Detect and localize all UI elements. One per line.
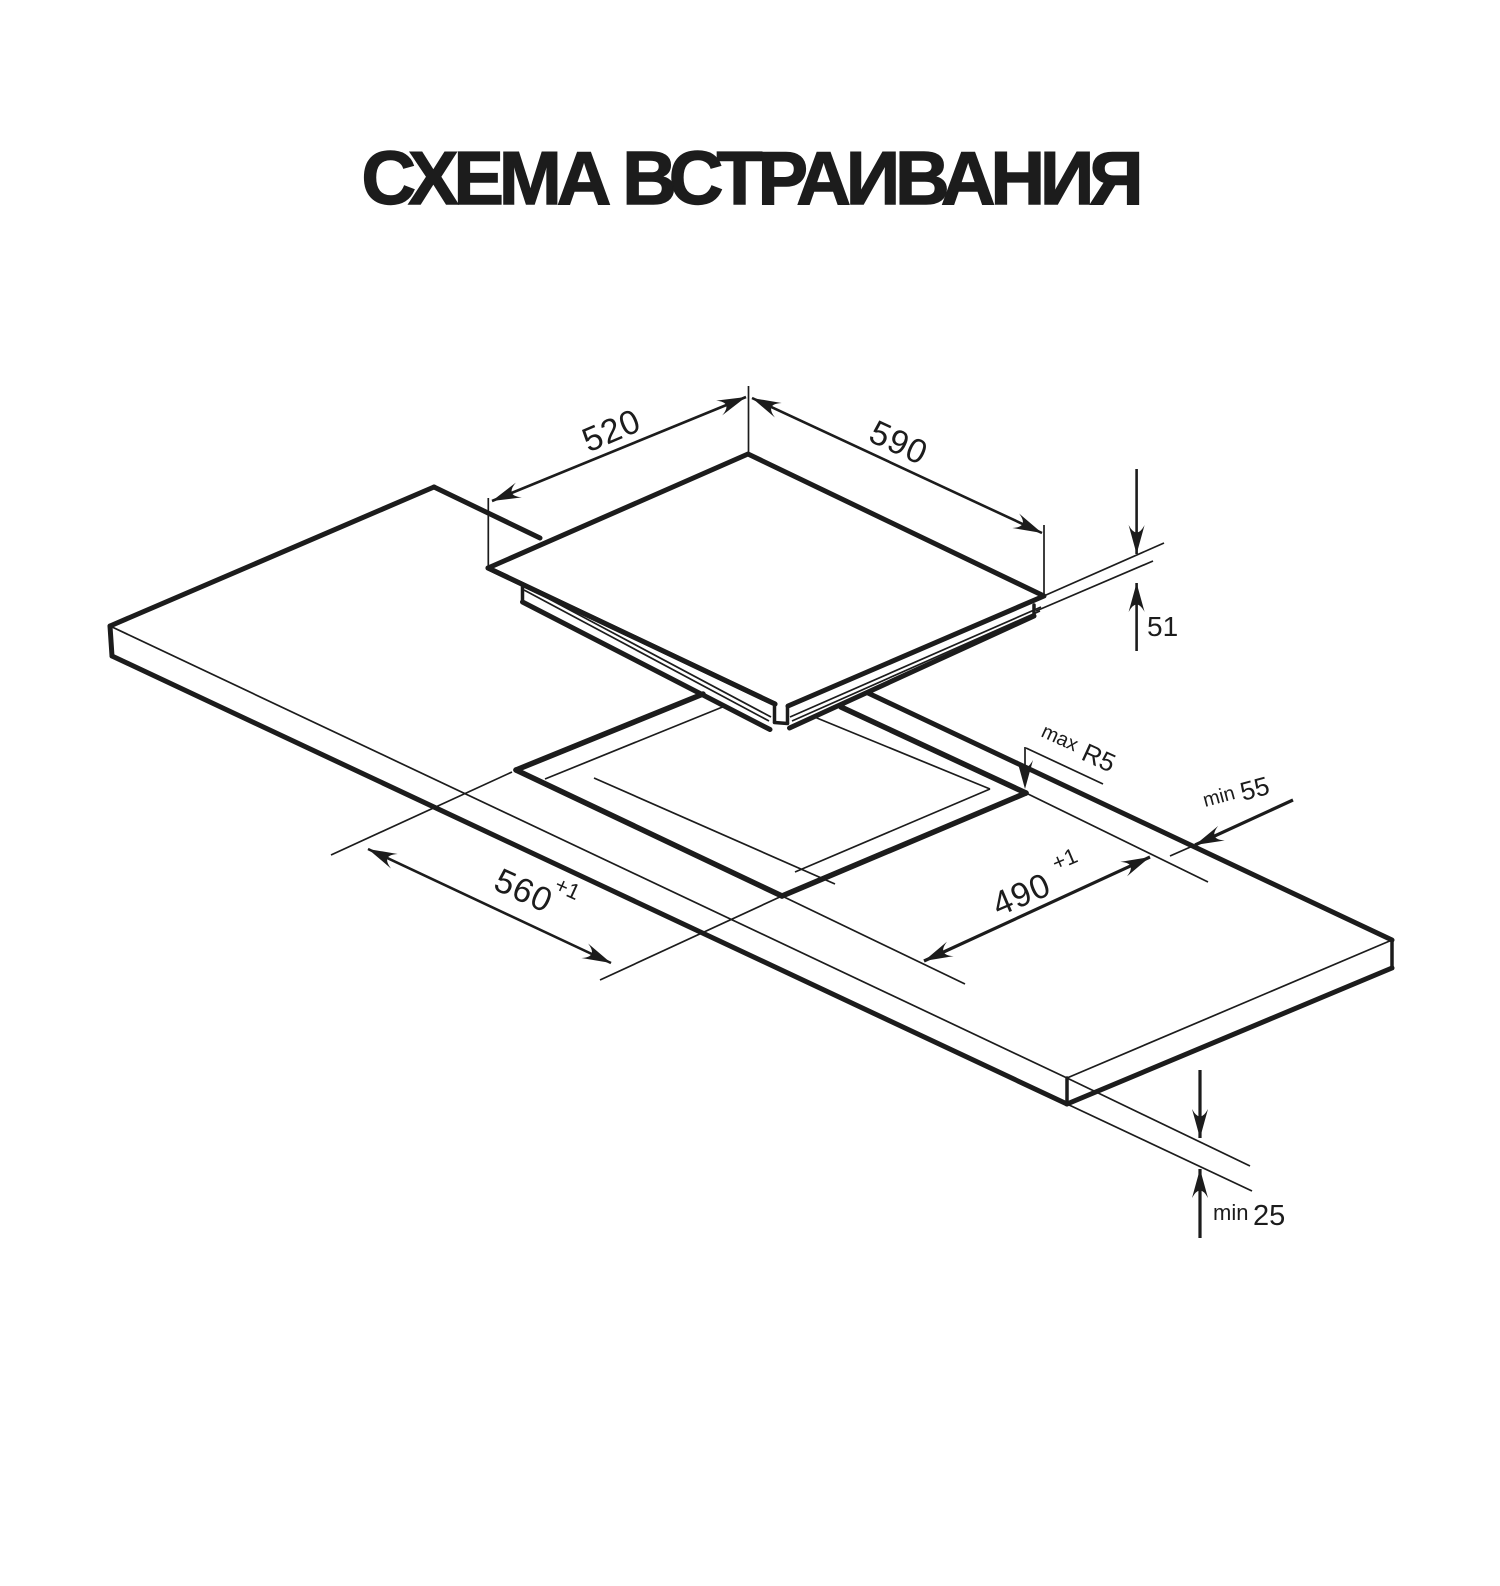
svg-text:max: max [1038,721,1082,757]
svg-text:min: min [1213,1200,1248,1225]
svg-text:+1: +1 [1048,843,1081,876]
svg-text:520: 520 [577,402,647,460]
svg-text:min: min [1201,782,1238,812]
svg-text:25: 25 [1253,1200,1285,1232]
svg-text:590: 590 [864,413,934,473]
svg-text:490: 490 [987,866,1057,924]
svg-text:R5: R5 [1078,737,1121,778]
svg-text:СХЕМА ВСТРАИВАНИЯ: СХЕМА ВСТРАИВАНИЯ [361,136,1139,220]
svg-text:55: 55 [1237,770,1273,806]
svg-text:51: 51 [1147,611,1178,642]
